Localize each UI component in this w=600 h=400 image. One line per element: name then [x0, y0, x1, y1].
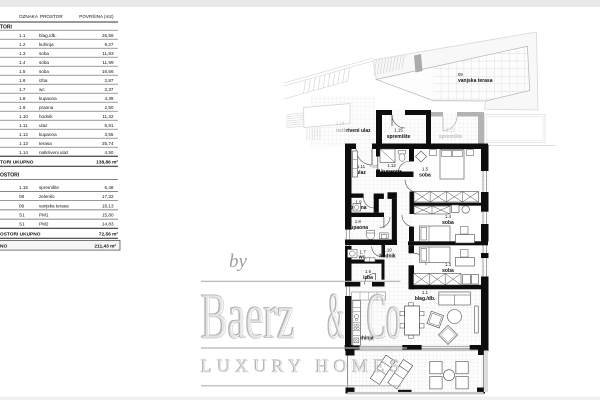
svg-text:1.9: 1.9 [19, 105, 26, 110]
svg-text:2.17: 2.17 [446, 128, 455, 133]
svg-text:LUXURY HOMES: LUXURY HOMES [201, 356, 406, 376]
svg-text:kuhinja: kuhinja [39, 42, 54, 47]
svg-text:+1/2: +1/2 [370, 164, 378, 168]
svg-text:hodnik: hodnik [39, 114, 53, 119]
svg-text:9,27: 9,27 [105, 42, 114, 47]
svg-text:TORI UKUPNO: TORI UKUPNO [0, 160, 34, 166]
svg-text:1.7: 1.7 [19, 87, 26, 92]
svg-text:S1: S1 [19, 213, 25, 218]
svg-text:1.14: 1.14 [336, 121, 345, 126]
svg-text:Co: Co [367, 281, 401, 353]
svg-text:by: by [229, 251, 248, 272]
svg-text:1.12: 1.12 [387, 163, 396, 168]
svg-text:1.8: 1.8 [19, 96, 26, 101]
svg-text:1.15: 1.15 [394, 128, 403, 133]
svg-text:&: & [328, 281, 344, 353]
svg-text:16,56: 16,56 [102, 69, 114, 74]
svg-text:spremište: spremište [39, 185, 59, 190]
svg-text:1.4: 1.4 [445, 214, 452, 219]
svg-text:211,43 m²: 211,43 m² [94, 243, 116, 249]
svg-text:6,48: 6,48 [105, 185, 114, 190]
svg-text:wc.: wc. [358, 254, 368, 260]
svg-text:blag./db.: blag./db. [415, 296, 436, 302]
svg-text:S1: S1 [19, 222, 25, 227]
svg-text:spremište: spremište [387, 134, 411, 140]
svg-text:1.6: 1.6 [365, 269, 372, 274]
svg-text:14,83: 14,83 [102, 222, 114, 227]
svg-text:4,50: 4,50 [105, 150, 114, 155]
svg-text:1.8: 1.8 [355, 219, 362, 224]
svg-text:09: 09 [458, 72, 463, 77]
svg-text:11,93: 11,93 [102, 51, 114, 56]
svg-text:1.3: 1.3 [19, 51, 26, 56]
svg-text:1.10: 1.10 [383, 248, 392, 253]
svg-text:1.1: 1.1 [19, 33, 26, 38]
svg-text:spremište: spremište [439, 134, 463, 140]
svg-text:1.15: 1.15 [19, 185, 28, 190]
svg-text:NO: NO [0, 243, 7, 249]
svg-text:soba: soba [39, 69, 49, 74]
svg-text:blag./db.: blag./db. [39, 33, 57, 38]
svg-text:2,87: 2,87 [105, 78, 114, 83]
svg-text:OSTORI: OSTORI [0, 173, 20, 179]
svg-text:TORI: TORI [0, 24, 12, 30]
svg-text:kupaona: kupaona [348, 225, 369, 231]
svg-text:PM2: PM2 [39, 222, 49, 227]
svg-text:soba: soba [442, 220, 454, 226]
svg-text:1.1: 1.1 [422, 290, 429, 295]
svg-text:2,37: 2,37 [105, 87, 114, 92]
svg-text:izba: izba [39, 78, 48, 83]
svg-text:natk: natk [336, 128, 347, 134]
svg-text:kupaona: kupaona [381, 169, 402, 175]
svg-text:PM1: PM1 [39, 213, 49, 218]
svg-text:soba: soba [39, 60, 49, 65]
svg-text:POVRŠINA (m2): POVRŠINA (m2) [79, 13, 114, 19]
svg-text:OSTORI UKUPNO: OSTORI UKUPNO [0, 232, 41, 238]
svg-text:72,56 m²: 72,56 m² [99, 232, 119, 238]
svg-text:praona: praona [39, 105, 54, 110]
svg-text:ulaz: ulaz [39, 123, 48, 128]
svg-text:09: 09 [19, 203, 25, 208]
svg-text:1.11: 1.11 [357, 164, 366, 169]
svg-text:1.4: 1.4 [19, 60, 26, 65]
svg-text:terasa: terasa [39, 141, 52, 146]
svg-text:2,50: 2,50 [105, 105, 114, 110]
svg-text:1.11: 1.11 [19, 123, 28, 128]
svg-text:natkriveni ulaz: natkriveni ulaz [39, 150, 69, 155]
svg-text:vanjska terasa: vanjska terasa [458, 78, 493, 84]
svg-text:soba: soba [419, 173, 431, 179]
svg-text:4,39: 4,39 [105, 96, 114, 101]
svg-text:18,13: 18,13 [102, 203, 114, 208]
svg-text:1.6: 1.6 [19, 78, 26, 83]
svg-text:1.10: 1.10 [19, 114, 28, 119]
svg-text:3,55: 3,55 [105, 132, 114, 137]
svg-text:11,32: 11,32 [102, 114, 114, 119]
svg-text:wc: wc [39, 87, 45, 92]
svg-text:15,80: 15,80 [102, 213, 114, 218]
svg-text:5,81: 5,81 [105, 123, 114, 128]
svg-text:Baerz: Baerz [201, 281, 295, 353]
svg-text:kupaona: kupaona [39, 96, 57, 101]
svg-text:riveni ulaz: riveni ulaz [346, 128, 371, 134]
svg-text:1.5: 1.5 [19, 69, 26, 74]
svg-text:PROSTOR: PROSTOR [40, 14, 63, 19]
svg-text:soba: soba [39, 51, 49, 56]
svg-text:hodnik: hodnik [379, 254, 396, 260]
svg-text:1.14: 1.14 [19, 150, 28, 155]
svg-text:OZNAKA: OZNAKA [19, 14, 39, 19]
svg-text:1.13: 1.13 [19, 141, 28, 146]
svg-text:138,86 m²: 138,86 m² [96, 160, 118, 166]
svg-text:soba: soba [442, 268, 454, 274]
svg-text:26,56: 26,56 [102, 33, 114, 38]
svg-text:1.12: 1.12 [19, 132, 28, 137]
svg-text:11,99: 11,99 [102, 60, 114, 65]
svg-text:08: 08 [19, 194, 25, 199]
svg-text:kupaona: kupaona [39, 132, 57, 137]
svg-text:zelenilo: zelenilo [39, 194, 55, 199]
svg-text:1.5: 1.5 [422, 167, 429, 172]
svg-text:1.2: 1.2 [19, 42, 26, 47]
svg-text:vanjska terasa: vanjska terasa [39, 203, 69, 208]
svg-text:17,32: 17,32 [102, 194, 114, 199]
svg-text:25,74: 25,74 [102, 141, 114, 146]
